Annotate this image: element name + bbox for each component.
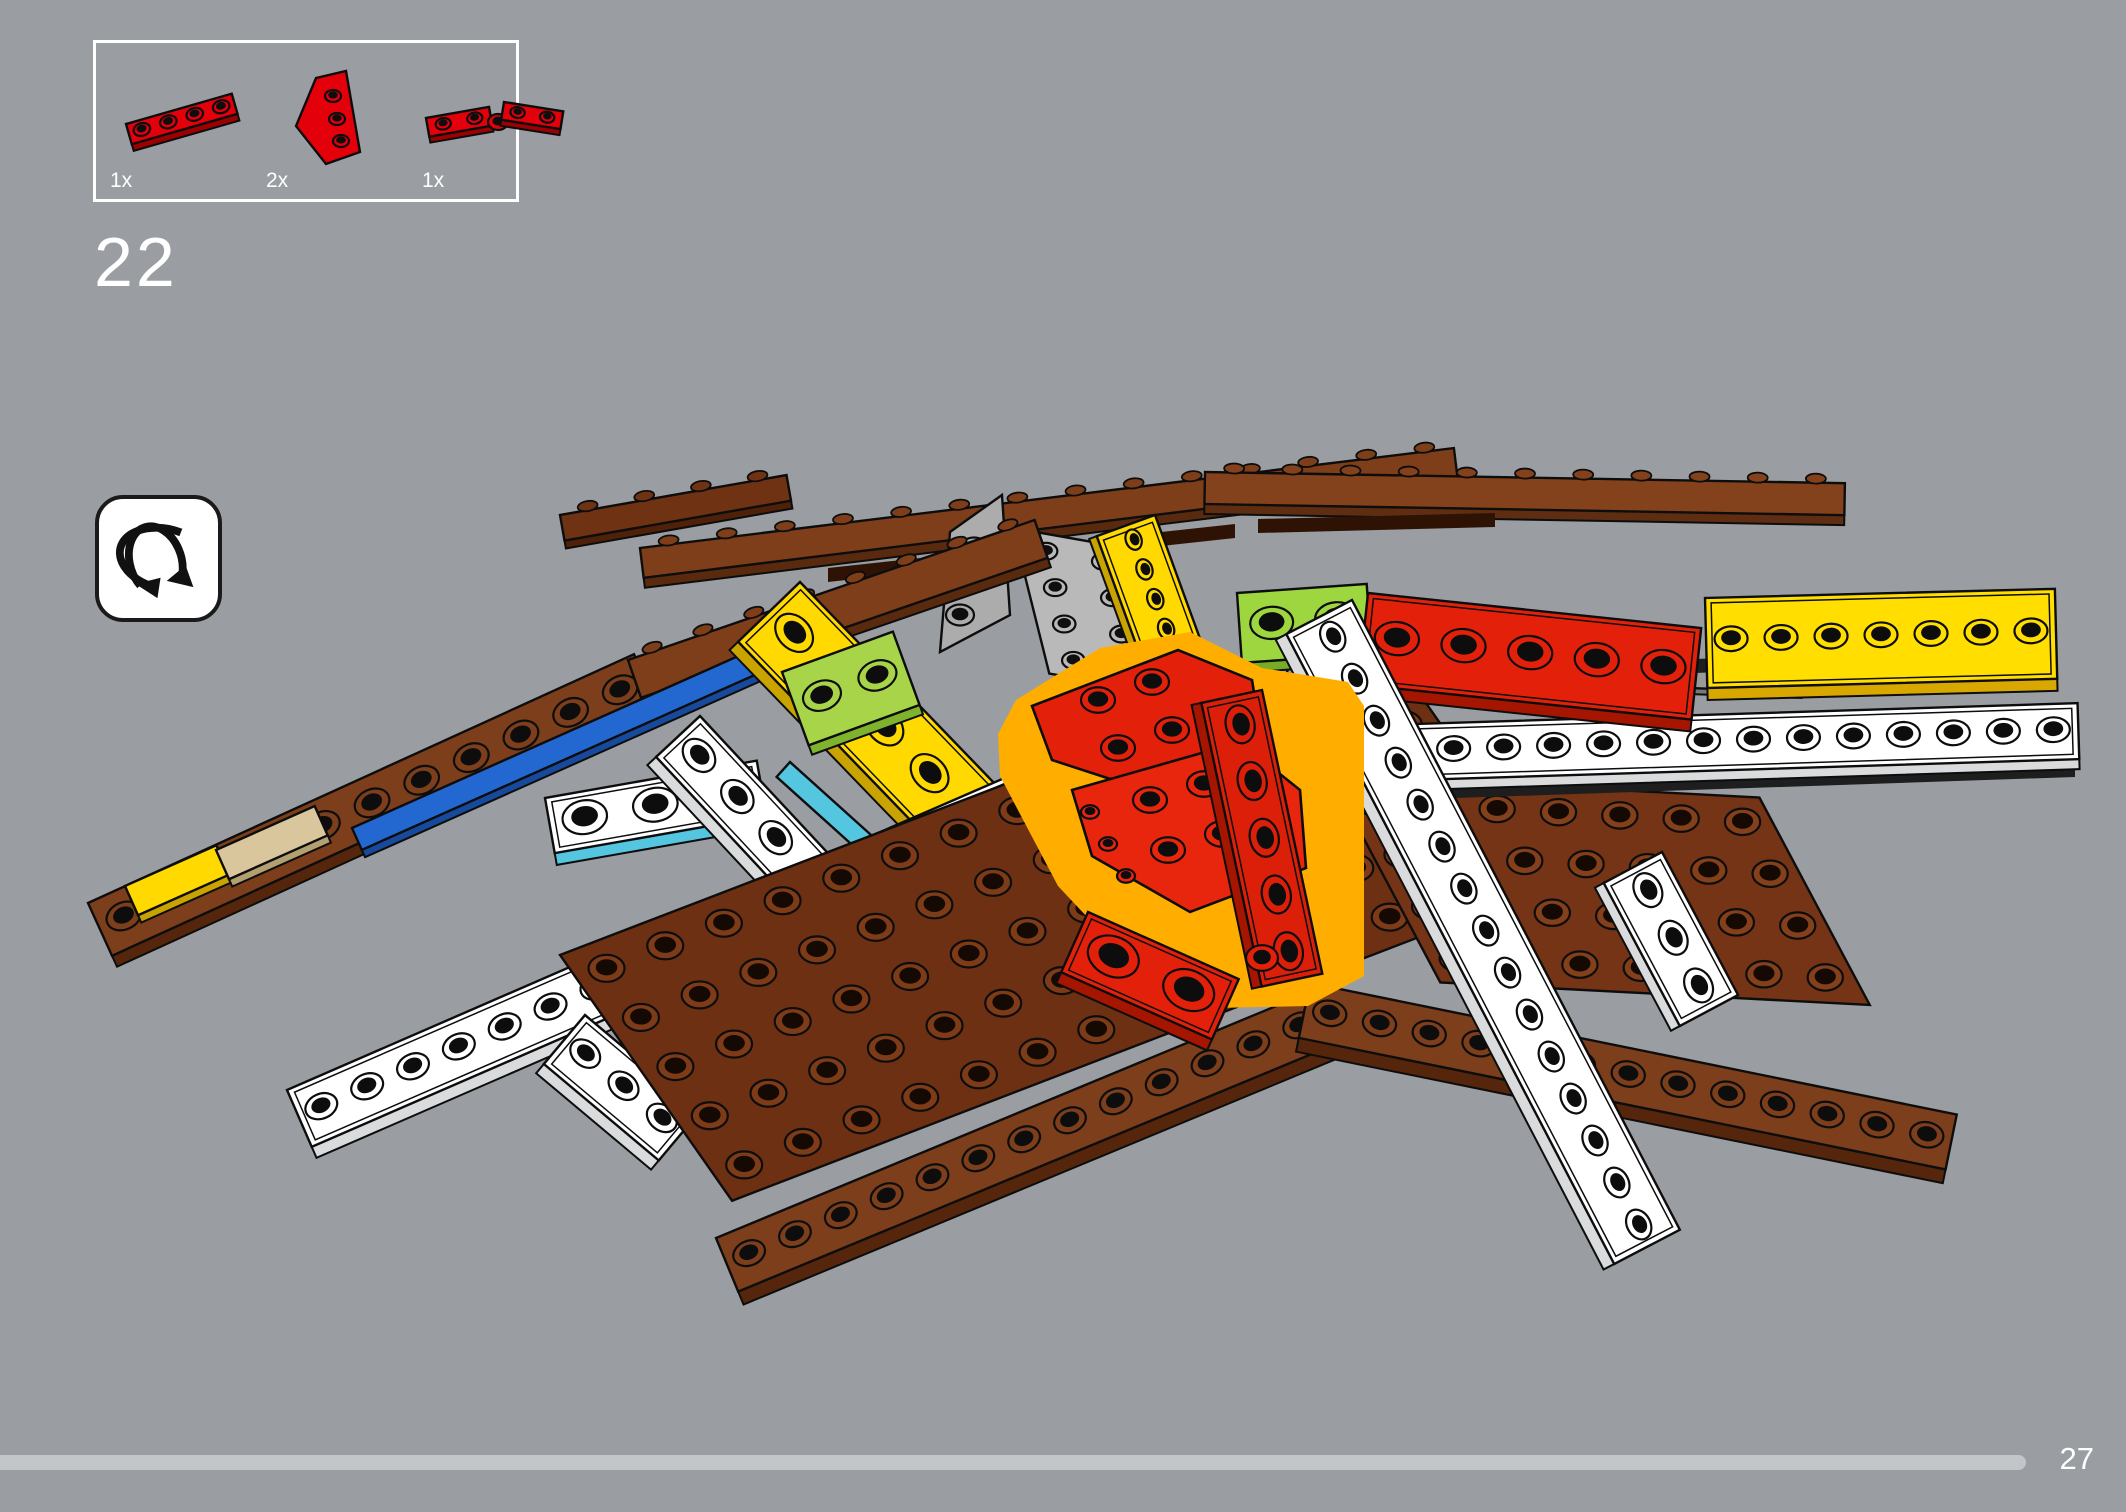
- part-red-hinge-plate: 1x: [422, 66, 572, 193]
- part-quantity: 2x: [266, 169, 288, 193]
- rotate-model-icon: [109, 509, 209, 609]
- instruction-page: 1x 2x 1x 22 27: [0, 0, 2126, 1512]
- part-red-plate-1x4: 1x: [110, 66, 260, 193]
- model-viewport[interactable]: [0, 0, 2126, 1512]
- red-hinge-plate-icon: [422, 66, 572, 171]
- new-parts-panel[interactable]: 1x 2x 1x: [93, 40, 519, 202]
- rotate-model-button[interactable]: [95, 495, 222, 622]
- part-quantity: 1x: [110, 169, 132, 193]
- page-number: 27: [2060, 1441, 2094, 1477]
- part-red-wedge-plate: 2x: [266, 66, 416, 193]
- red-plate-1x4-icon: [110, 66, 260, 171]
- part-quantity: 1x: [422, 169, 444, 193]
- red-wedge-plate-icon: [266, 66, 416, 171]
- progress-bar[interactable]: [0, 1455, 2126, 1470]
- step-number: 22: [94, 222, 178, 302]
- progress-fill: [0, 1455, 2026, 1470]
